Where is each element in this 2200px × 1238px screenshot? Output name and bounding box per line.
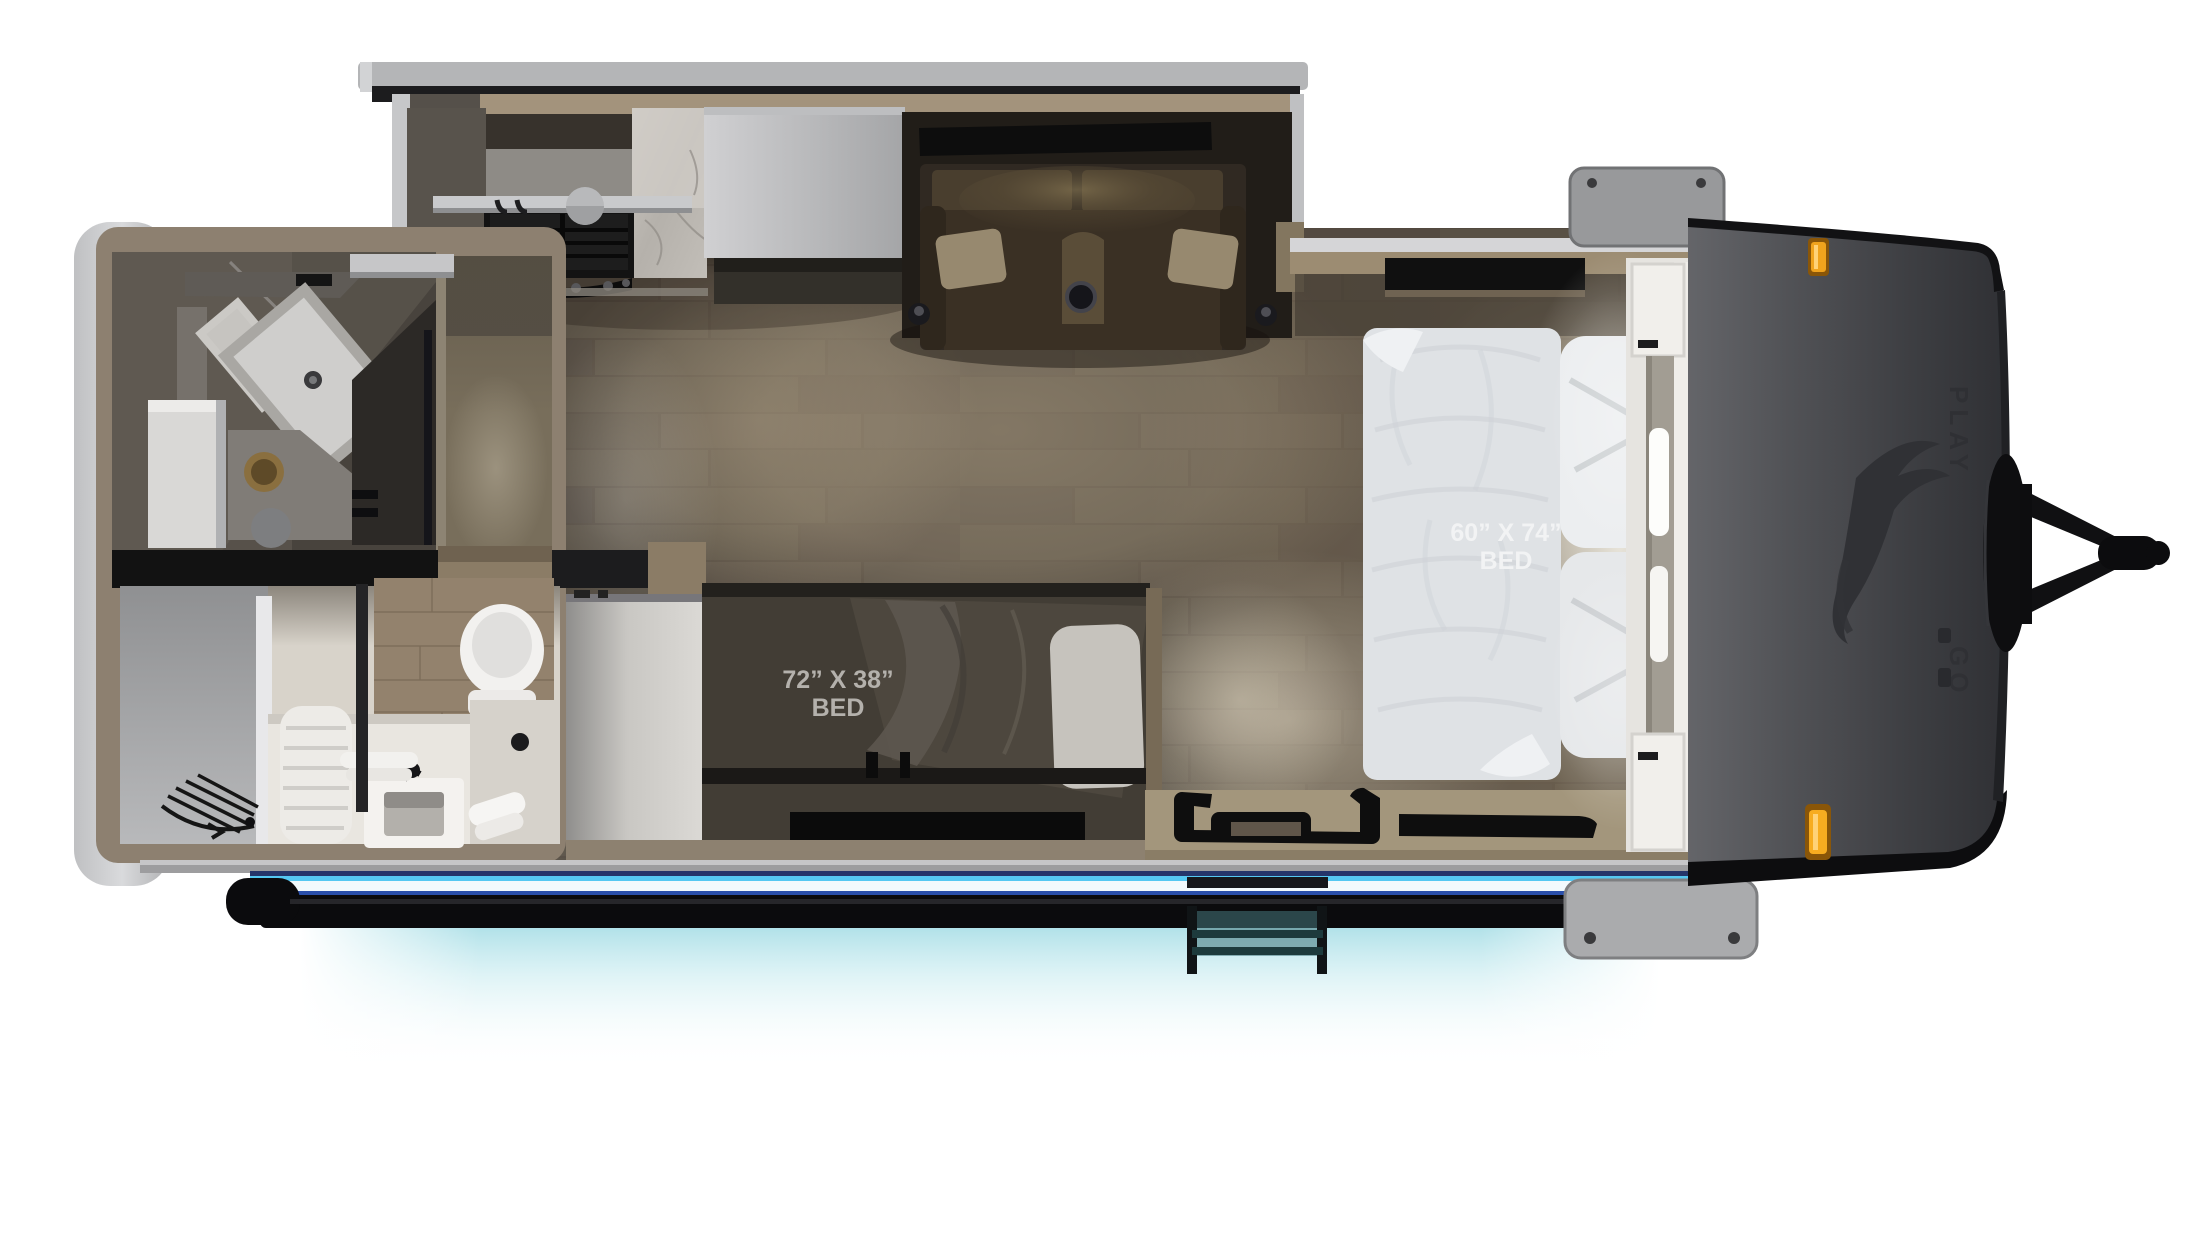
svg-text:PLAY: PLAY: [1944, 386, 1974, 477]
svg-text:60” X 74”: 60” X 74”: [1450, 519, 1561, 547]
svg-text:BED: BED: [812, 694, 865, 722]
svg-text:72” X 38”: 72” X 38”: [782, 666, 893, 694]
svg-text:BED: BED: [1480, 547, 1533, 575]
